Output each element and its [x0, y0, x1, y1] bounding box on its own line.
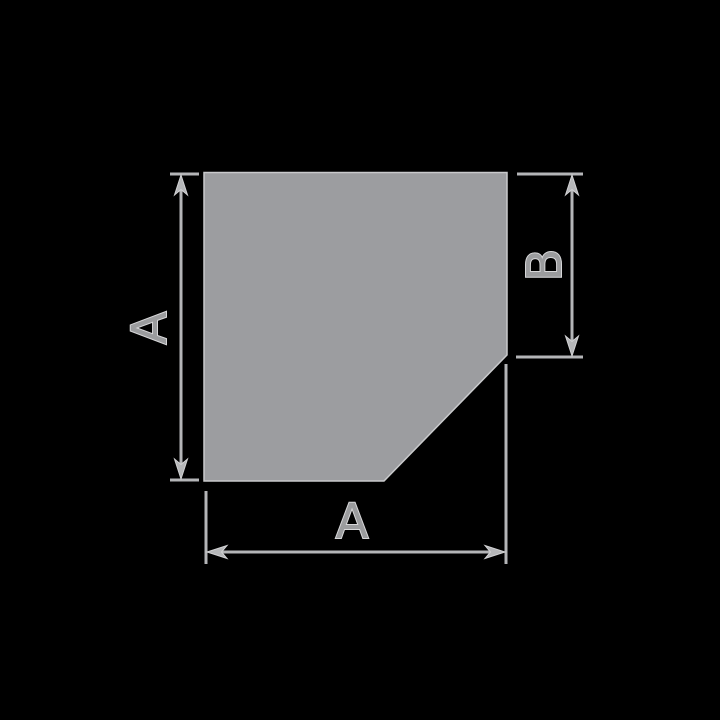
- dimension-label-b: B: [517, 249, 573, 282]
- chamfered-plate-shape: [204, 173, 507, 482]
- diagram-canvas: A B A: [0, 0, 720, 720]
- dimension-diagram: A B A: [0, 0, 720, 720]
- dimension-label-a-bottom: A: [336, 494, 369, 550]
- dimension-label-a-left: A: [122, 311, 178, 344]
- left-dimension: A: [122, 174, 199, 480]
- right-dimension: B: [516, 174, 583, 357]
